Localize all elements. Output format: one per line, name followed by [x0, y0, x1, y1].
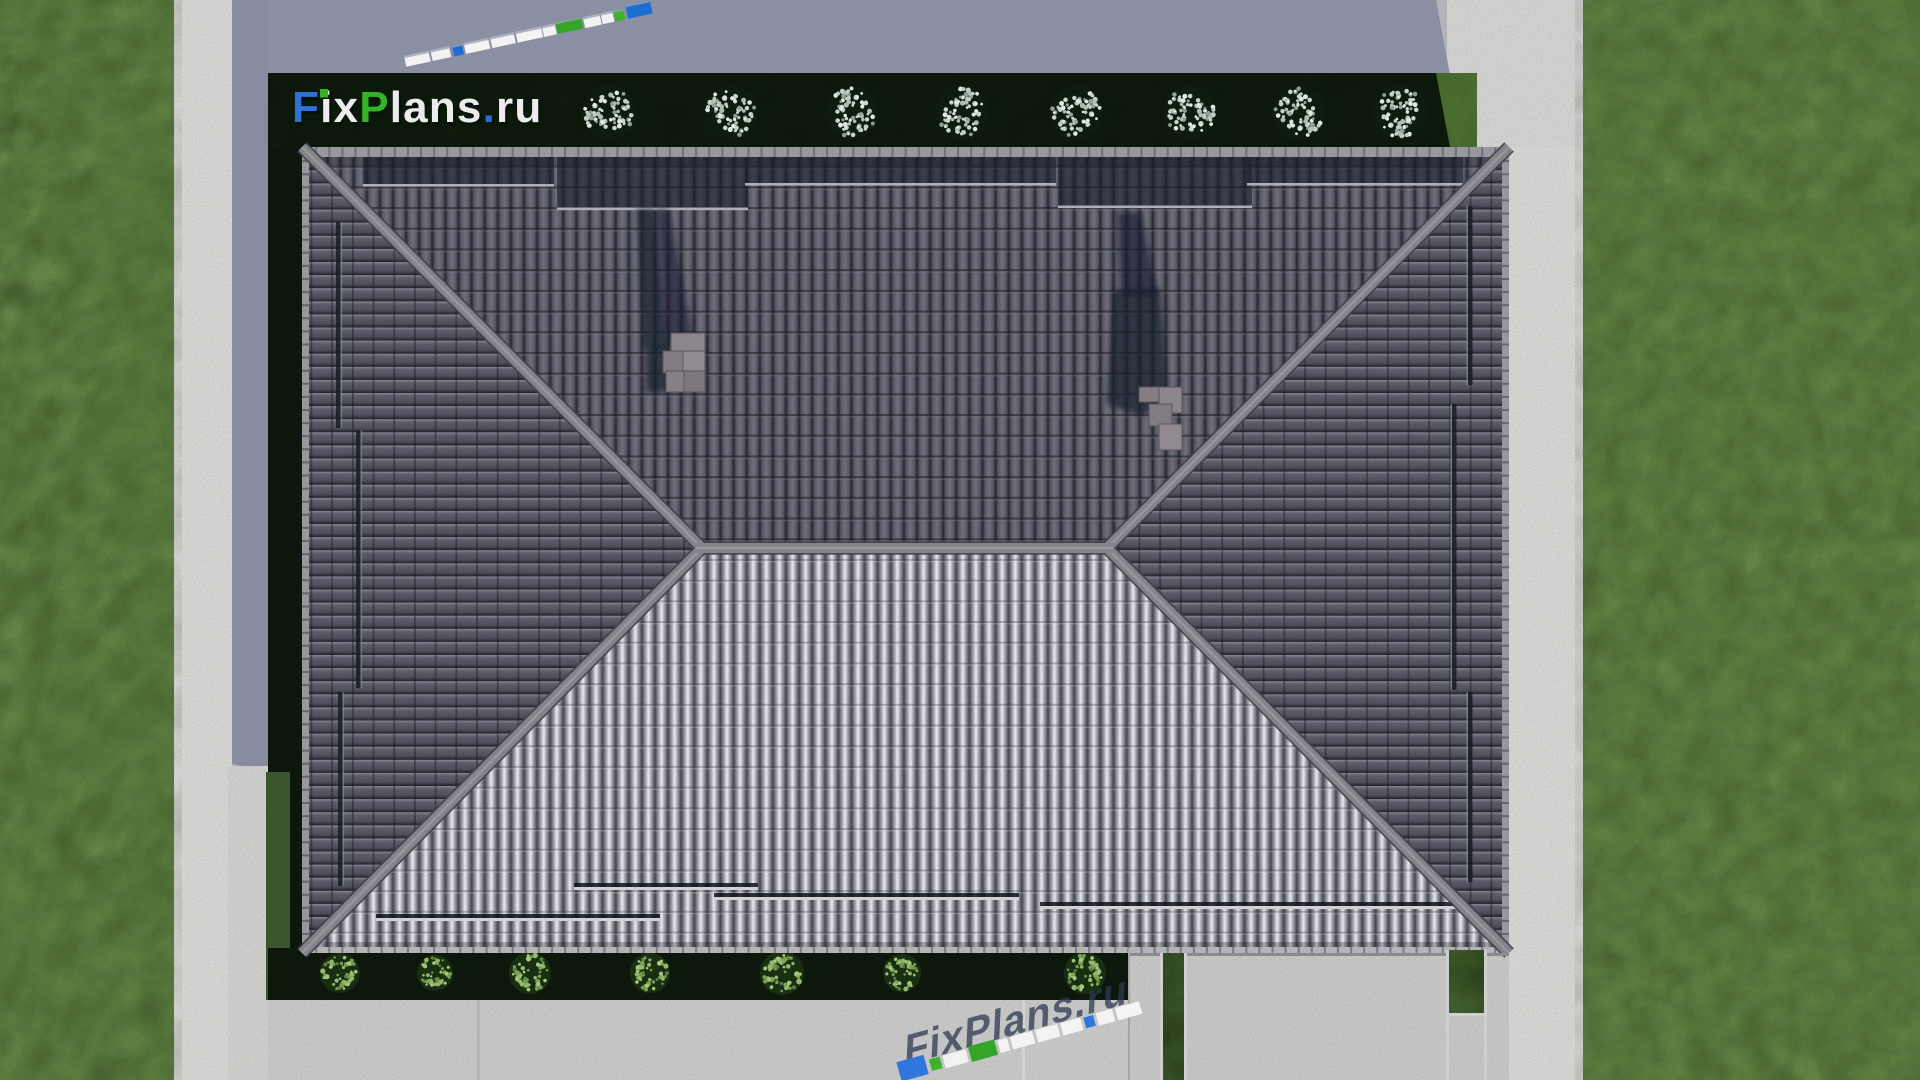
svg-text:FixPlans.ru: FixPlans.ru	[292, 83, 542, 132]
